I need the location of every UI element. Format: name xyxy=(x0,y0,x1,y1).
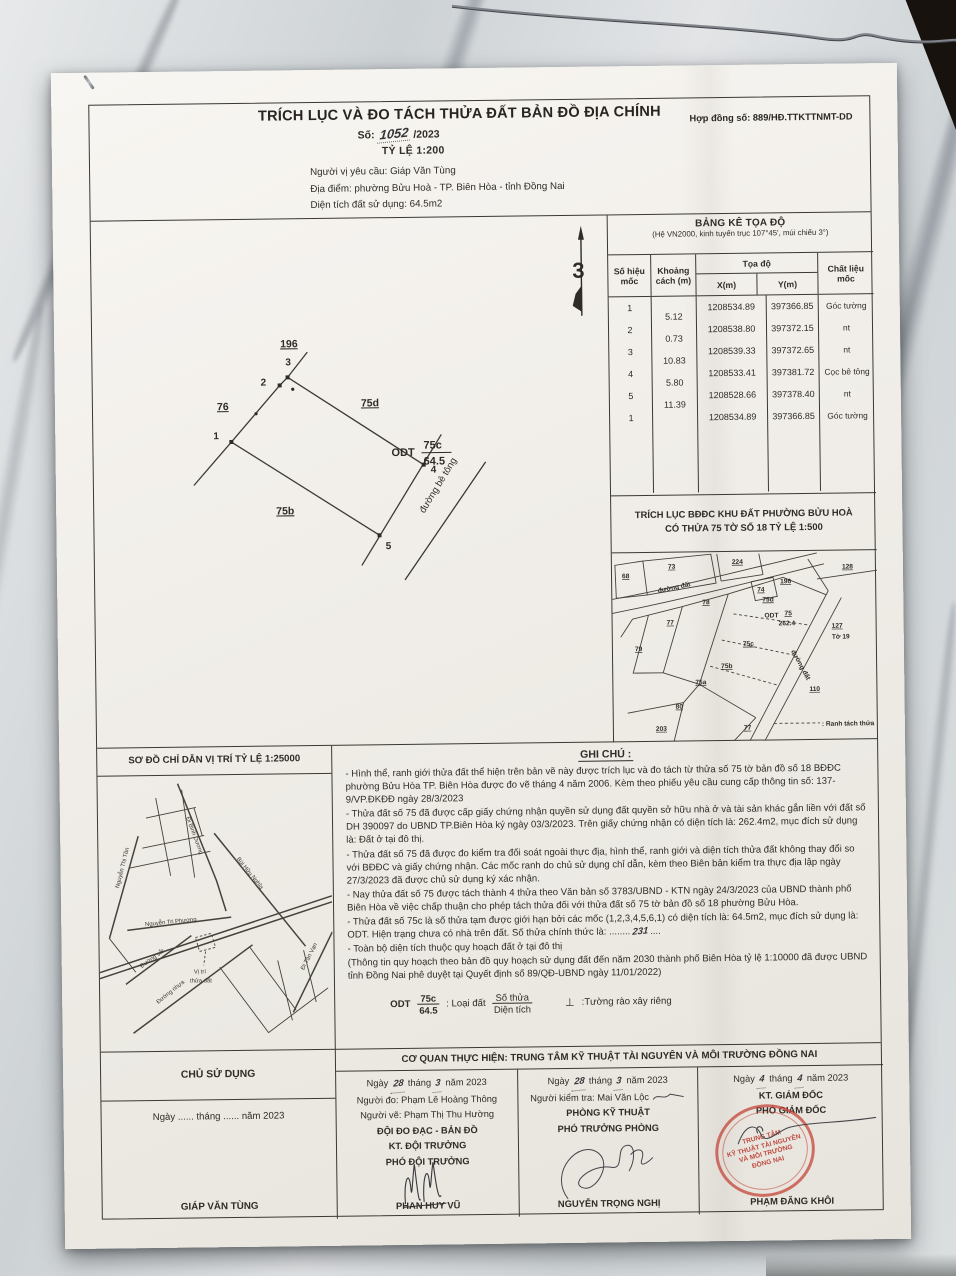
coordinate-system-note: (Hệ VN2000, kinh tuyến trục 107°45', múi… xyxy=(608,227,873,239)
neighbor-parcel-196: 196 xyxy=(280,338,298,350)
surveyor-name: PHAN HUY VŨ xyxy=(338,1196,519,1214)
svg-text:224: 224 xyxy=(732,559,743,566)
svg-text:77: 77 xyxy=(667,620,675,627)
handwritten-day: 28 xyxy=(390,1075,406,1093)
map-scale: TỶ LỆ 1:200 xyxy=(382,144,445,157)
coordinate-table-body: 1 2 3 4 5 1 5.12 0.73 10.83 xyxy=(609,294,876,493)
svg-text:Đi Tân Vạn: Đi Tân Vạn xyxy=(300,942,319,971)
svg-text:3: 3 xyxy=(572,258,585,283)
svg-text:75b: 75b xyxy=(721,663,732,670)
svg-text:75a: 75a xyxy=(695,679,706,686)
owner-title: CHỦ SỬ DỤNG xyxy=(101,1050,336,1102)
note-item: - Thửa đất số 75 đã được cấp giấy chứng … xyxy=(346,802,867,848)
svg-text:thửa đất: thửa đất xyxy=(190,977,212,984)
coordinate-table-title: BẢNG KÊ TỌA ĐỘ (Hệ VN2000, kinh tuyến tr… xyxy=(608,212,873,255)
col-y: Y(m) xyxy=(757,273,817,295)
handwritten-parcel-number: 231 xyxy=(630,924,651,939)
note-item: (Thông tin quy hoạch theo bản đồ quy hoạ… xyxy=(348,951,869,984)
handwritten-doc-number: 1052 xyxy=(377,124,411,143)
svg-text:73: 73 xyxy=(668,564,676,571)
outer-frame: TRÍCH LỤC VÀ ĐO TÁCH THỬA ĐẤT BẢN ĐỒ ĐỊA… xyxy=(88,95,884,1219)
marble-vein xyxy=(0,303,53,996)
svg-text:Bùi Hữu Nghĩa: Bùi Hữu Nghĩa xyxy=(235,857,265,892)
director-name: PHẠM ĐĂNG KHÔI xyxy=(700,1192,885,1210)
signature-section: CHỦ SỬ DỤNG Ngày ...... tháng ...... năm… xyxy=(101,1042,883,1221)
svg-text:75: 75 xyxy=(784,610,792,617)
handwritten-day: 28 xyxy=(571,1073,587,1091)
neighbor-parcel-76: 76 xyxy=(217,401,229,413)
map-extract: 68 73 224 74 196 128 127 Tờ 19 78 77 79 … xyxy=(612,550,879,742)
contract-number: Hợp đồng số: 889/HĐ.TTKTTNMT-DD xyxy=(689,111,865,123)
signature-mai-van-loc xyxy=(651,1091,685,1103)
road-label-right: đường đất xyxy=(789,648,812,682)
notes-title: GHI CHÚ : xyxy=(345,745,866,763)
x-column: 1208534.89 1208538.80 1208539.33 1208533… xyxy=(697,295,769,492)
parcel-position-label: Vị trí xyxy=(194,969,207,975)
note-item: - Hình thể, ranh giới thửa đất thể hiện … xyxy=(345,761,866,807)
fence-symbol: ⊥ xyxy=(565,995,575,1008)
location-map-panel: SƠ ĐỒ CHỈ DẪN VỊ TRÍ TỶ LỆ 1:25000 xyxy=(97,746,336,1053)
location-map-drawing: Đi Bình Dương Bùi Hữu Nghĩa Nguyễn Thị T… xyxy=(97,774,333,1051)
notes-panel: GHI CHÚ : - Hình thể, ranh giới thửa đất… xyxy=(332,739,883,1050)
svg-text:196: 196 xyxy=(780,578,791,585)
owner-box: CHỦ SỬ DỤNG Ngày ...... tháng ...... năm… xyxy=(101,1050,338,1222)
svg-text:Nguyễn Thị Tồn: Nguyễn Thị Tồn xyxy=(114,847,131,889)
marker-id-column: 1 2 3 4 5 1 xyxy=(609,297,654,494)
request-info: Người vị yêu cầu: Giáp Văn Tùng Địa điểm… xyxy=(310,162,565,215)
owner-date-line: Ngày ...... tháng ...... năm 2023 xyxy=(102,1110,336,1124)
right-column: BẢNG KÊ TỌA ĐỘ (Hệ VN2000, kinh tuyến tr… xyxy=(608,212,879,742)
surveyor-column: Ngày 28 tháng 3 năm 2023 Người đo: Phạm … xyxy=(336,1070,520,1219)
svg-text:80: 80 xyxy=(676,704,684,711)
document-paper: TRÍCH LỤC VÀ ĐO TÁCH THỬA ĐẤT BẢN ĐỒ ĐỊA… xyxy=(51,63,911,1249)
map-extract-title: TRÍCH LỤC BĐĐC KHU ĐẤT PHƯỜNG BỬU HOÀ CÓ… xyxy=(611,492,877,553)
point-label-1: 1 xyxy=(213,431,219,442)
main-row: 1 2 3 4 5 196 76 75d 75b ODT 75c 64.5 đư… xyxy=(91,211,877,747)
svg-text:128: 128 xyxy=(842,563,853,570)
neighbor-parcel-75b: 75b xyxy=(276,505,294,517)
note-item: - Thửa đất số 75 đã được đo kiểm tra đối… xyxy=(346,842,867,888)
distance-column: 5.12 0.73 10.83 5.80 11.39 xyxy=(652,296,699,493)
svg-text:75d: 75d xyxy=(762,596,773,603)
inspector-line: Người kiểm tra: Mai Văn Lộc xyxy=(518,1089,697,1107)
col-x: X(m) xyxy=(696,274,757,296)
svg-text:127: 127 xyxy=(832,623,843,630)
col-coordinates: Tọa độ X(m) Y(m) xyxy=(696,253,818,295)
owner-name: GIÁP VĂN TÙNG xyxy=(103,1200,337,1214)
parcel-area-label: 64.5 xyxy=(424,455,446,467)
svg-text:ODT: ODT xyxy=(764,612,778,619)
photo-scene: TRÍCH LỤC VÀ ĐO TÁCH THỬA ĐẤT BẢN ĐỒ ĐỊA… xyxy=(0,0,956,1276)
svg-text:Đường nhựa: Đường nhựa xyxy=(156,979,187,1005)
y-column: 397366.85 397372.15 397372.65 397381.72 … xyxy=(767,295,821,492)
north-arrow-icon: 3 xyxy=(572,226,585,316)
handwritten-month: 3 xyxy=(614,1073,624,1091)
table-edge-shadow xyxy=(766,1254,956,1276)
parcel-sketch-drawing: 1 2 3 4 5 196 76 75d 75b ODT 75c 64.5 đư… xyxy=(91,215,614,748)
svg-text:262.4: 262.4 xyxy=(779,620,796,627)
point-label-5: 5 xyxy=(386,541,392,552)
handwritten-day: 4 xyxy=(757,1071,767,1089)
map-extract-drawing: 68 73 224 74 196 128 127 Tờ 19 78 77 79 … xyxy=(612,550,879,742)
staple xyxy=(83,75,95,90)
svg-text:203: 203 xyxy=(656,726,667,733)
coordinate-table: BẢNG KÊ TỌA ĐỘ (Hệ VN2000, kinh tuyến tr… xyxy=(608,212,876,495)
row-three: SƠ ĐỒ CHỈ DẪN VỊ TRÍ TỶ LỆ 1:25000 xyxy=(97,738,881,1052)
inspector-column: Ngày 28 tháng 3 năm 2023 Người kiểm tra:… xyxy=(518,1067,700,1216)
handwritten-month: 3 xyxy=(433,1075,443,1093)
svg-text:Nguyễn Tri Phương: Nguyễn Tri Phương xyxy=(145,916,197,928)
svg-text:77: 77 xyxy=(744,725,752,732)
point-label-3: 3 xyxy=(285,357,291,368)
header-section: TRÍCH LỤC VÀ ĐO TÁCH THỬA ĐẤT BẢN ĐỒ ĐỊA… xyxy=(89,96,870,221)
parcel-fraction: 75c 64.5 xyxy=(417,992,439,1015)
svg-text:79: 79 xyxy=(635,646,643,653)
parcel-type-label: ODT xyxy=(391,447,415,459)
svg-text:68: 68 xyxy=(622,573,630,580)
col-marker-id: Số hiệu mốc xyxy=(608,255,651,297)
svg-text:78: 78 xyxy=(702,599,710,606)
handwritten-month: 4 xyxy=(794,1071,804,1089)
signature-pham-dang-khoi xyxy=(733,1111,884,1159)
svg-text:74: 74 xyxy=(757,587,765,594)
neighbor-parcel-75d: 75d xyxy=(361,397,379,409)
split-boundary-legend: : Ranh tách thửa xyxy=(822,720,875,728)
agency-box: CƠ QUAN THỰC HIỆN: TRUNG TÂM KỸ THUẬT TÀ… xyxy=(336,1043,885,1219)
coordinate-table-header: Số hiệu mốc Khoảng cách (m) Tọa độ X(m) … xyxy=(608,252,873,297)
area-line: Diện tích đất sử dụng: 64.5m2 xyxy=(310,195,565,215)
location-map-title: SƠ ĐỒ CHỈ DẪN VỊ TRÍ TỶ LỆ 1:25000 xyxy=(97,746,331,777)
parcel-id-label: 75c xyxy=(423,439,442,451)
signature-columns: Ngày 28 tháng 3 năm 2023 Người đo: Phạm … xyxy=(336,1065,885,1219)
point-label-2: 2 xyxy=(261,378,267,389)
director-column: Ngày 4 tháng 4 năm 2023 KT. GIÁM ĐỐC PHÓ… xyxy=(698,1065,885,1214)
svg-text:110: 110 xyxy=(809,686,820,693)
parcel-sketch: 1 2 3 4 5 196 76 75d 75b ODT 75c 64.5 đư… xyxy=(91,215,614,748)
fraction-key: Số thửa Diện tích xyxy=(493,991,533,1014)
location-line: Địa điểm: phường Bửu Hoà - TP. Biên Hòa … xyxy=(310,178,565,198)
svg-text:Tờ 19: Tờ 19 xyxy=(832,633,850,640)
document-number: Số: 1052 /2023 xyxy=(358,125,440,142)
road-label-top: đường đất xyxy=(657,580,692,595)
col-material: Chất liệu mốc xyxy=(818,252,873,294)
svg-text:75c: 75c xyxy=(743,641,754,648)
material-column: Góc tường nt nt Cọc bê tông nt Góc tường xyxy=(819,294,876,491)
notation-legend: ODT 75c 64.5 : Loại đất Số thửa Diện tíc… xyxy=(390,987,869,1016)
col-distance: Khoảng cách (m) xyxy=(651,254,696,296)
inspector-name: NGUYỄN TRỌNG NGHỊ xyxy=(520,1194,699,1212)
